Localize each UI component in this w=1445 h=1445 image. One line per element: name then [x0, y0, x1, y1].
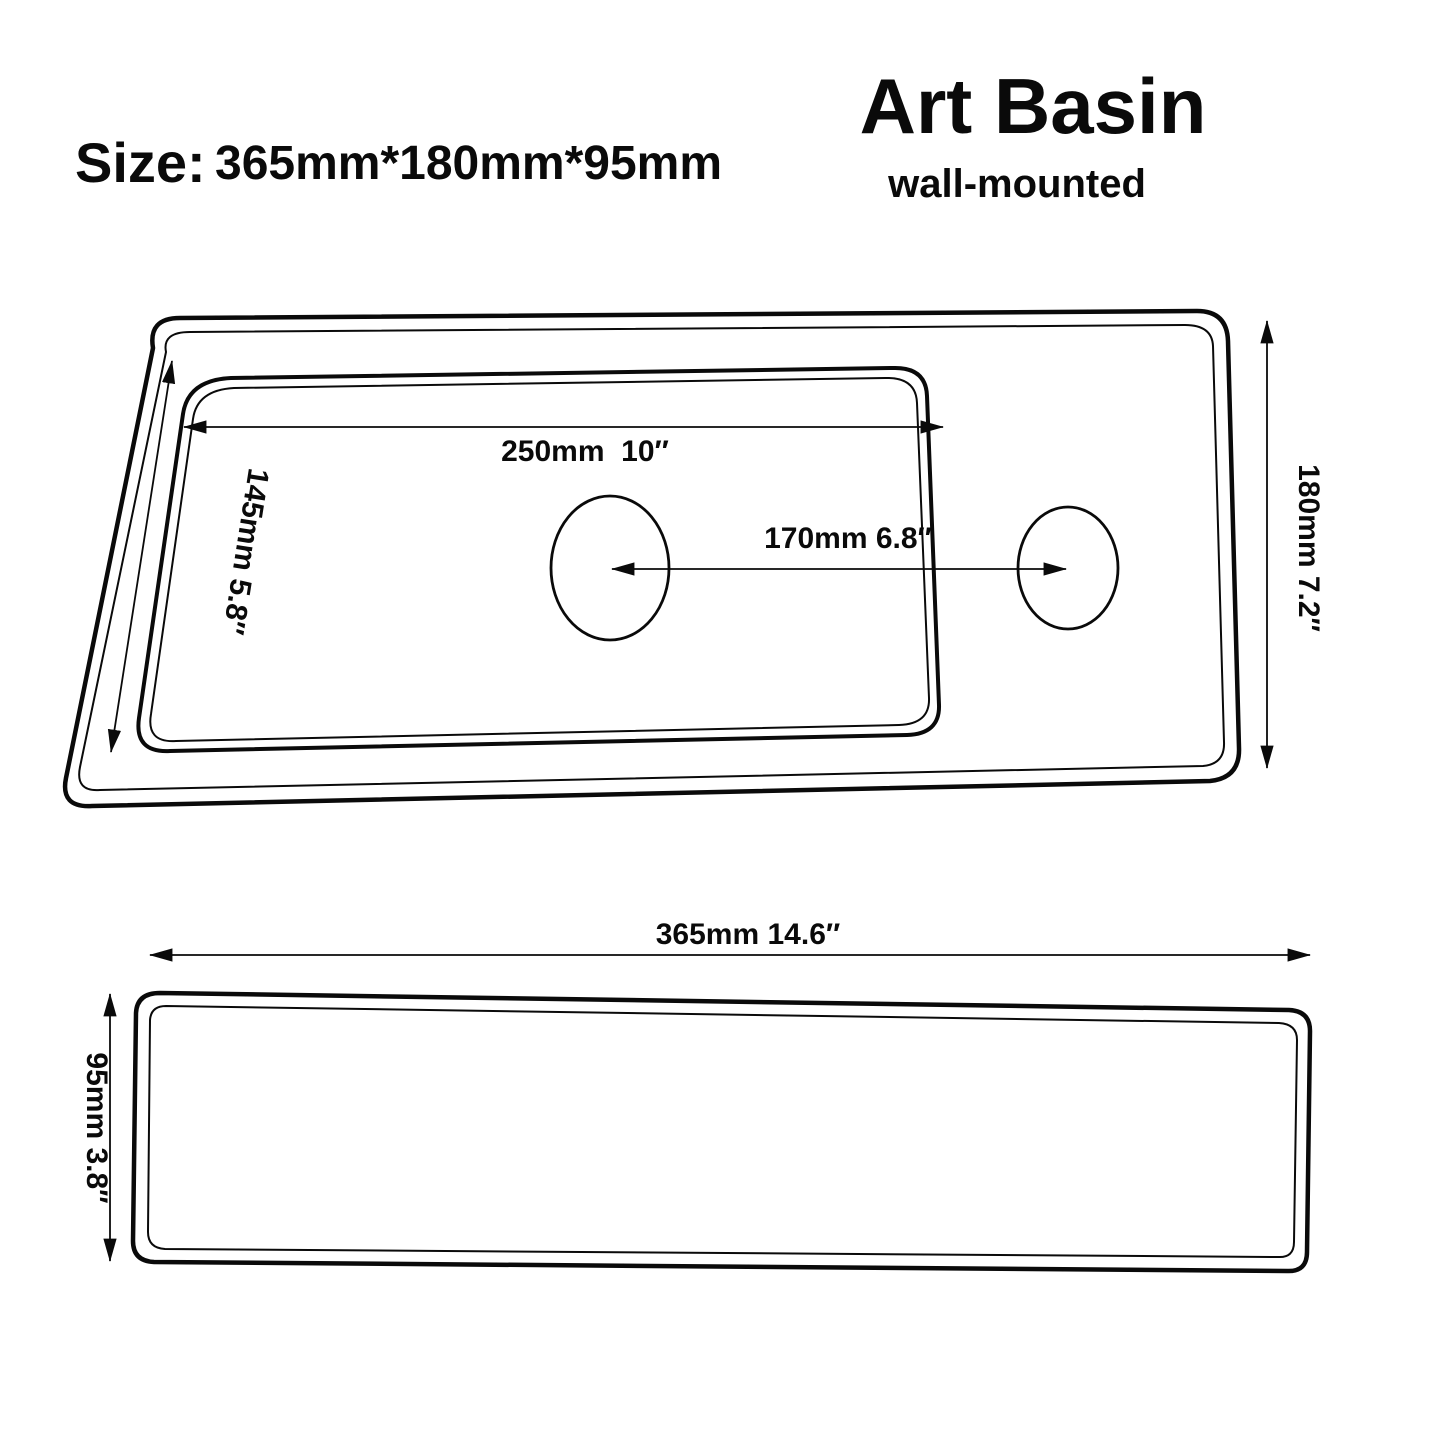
basin-bowl-inner-line	[150, 378, 929, 741]
dim-overall-height-label: 95mm 3.8″	[80, 1052, 113, 1203]
dim-hole-spacing-label: 170mm 6.8″	[764, 522, 932, 555]
side-view-inner-line	[148, 1006, 1297, 1257]
header: Size: 365mm*180mm*95mm Art Basin wall-mo…	[75, 62, 1206, 206]
basin-dimension-sheet: Size: 365mm*180mm*95mm Art Basin wall-mo…	[0, 0, 1445, 1445]
dim-basin-width-label: 250mm 10″	[501, 435, 669, 468]
faucet-hole	[1018, 507, 1118, 629]
page-subtitle: wall-mounted	[887, 162, 1146, 206]
dim-overall-depth-label: 180mm 7.2″	[1292, 464, 1325, 632]
side-view-diagram: 365mm 14.6″ 95mm 3.8″	[80, 918, 1310, 1271]
page-title: Art Basin	[860, 62, 1207, 150]
drain-hole	[551, 496, 669, 640]
top-view-diagram: 250mm 10″ 145mm 5.8″ 170mm 6.8″ 180mm 7.…	[65, 311, 1325, 806]
dim-basin-depth-label: 145mm 5.8″	[216, 466, 275, 637]
size-value: 365mm*180mm*95mm	[215, 137, 722, 190]
size-label: Size:	[75, 131, 206, 194]
side-view-outer-outline	[133, 993, 1310, 1271]
dim-overall-width-label: 365mm 14.6″	[656, 918, 841, 951]
dimension-drawing-canvas: Size: 365mm*180mm*95mm Art Basin wall-mo…	[0, 0, 1445, 1445]
